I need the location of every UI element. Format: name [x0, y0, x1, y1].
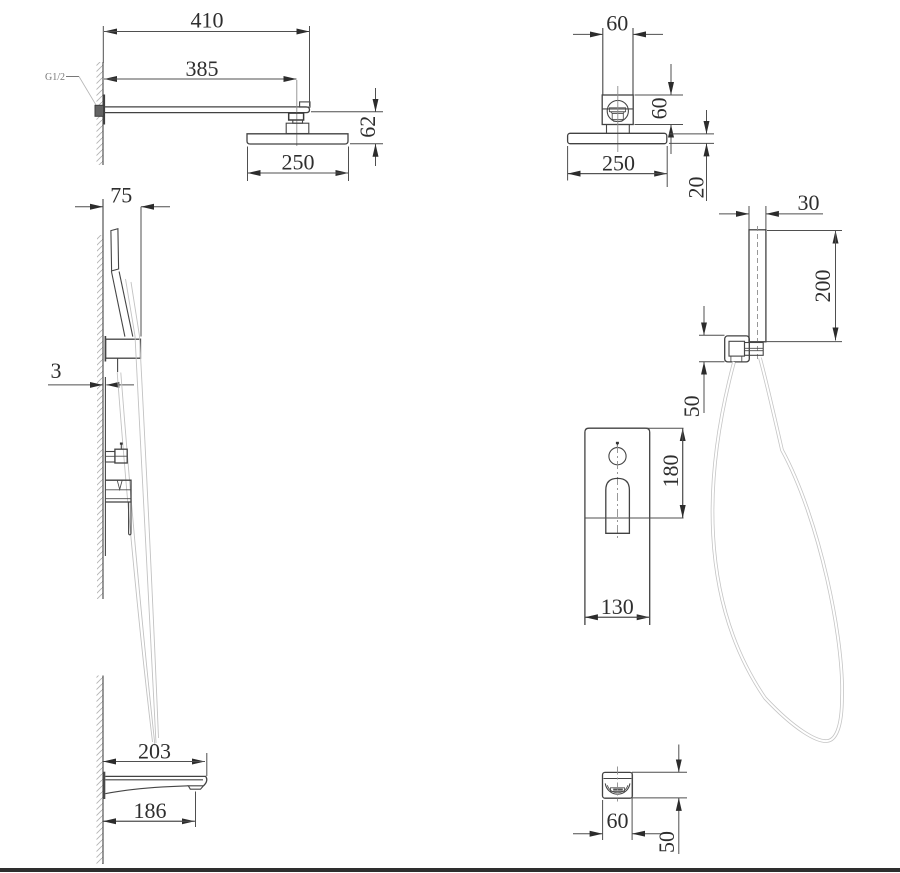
svg-text:60: 60 — [607, 808, 629, 833]
svg-text:62: 62 — [355, 116, 380, 138]
svg-text:385: 385 — [186, 56, 219, 81]
svg-text:50: 50 — [679, 395, 704, 417]
svg-text:60: 60 — [606, 11, 628, 36]
svg-text:G1/2: G1/2 — [45, 72, 65, 83]
svg-text:203: 203 — [138, 739, 171, 764]
svg-text:50: 50 — [654, 831, 679, 853]
svg-text:75: 75 — [110, 183, 132, 208]
svg-text:60: 60 — [646, 97, 671, 119]
svg-text:130: 130 — [601, 594, 634, 619]
svg-text:180: 180 — [658, 455, 683, 488]
svg-text:410: 410 — [191, 8, 224, 33]
svg-text:250: 250 — [602, 151, 635, 176]
svg-text:250: 250 — [282, 150, 315, 175]
svg-text:20: 20 — [684, 177, 709, 199]
svg-text:200: 200 — [810, 270, 835, 303]
svg-text:30: 30 — [798, 190, 820, 215]
svg-text:3: 3 — [51, 358, 62, 383]
svg-text:186: 186 — [134, 798, 167, 823]
